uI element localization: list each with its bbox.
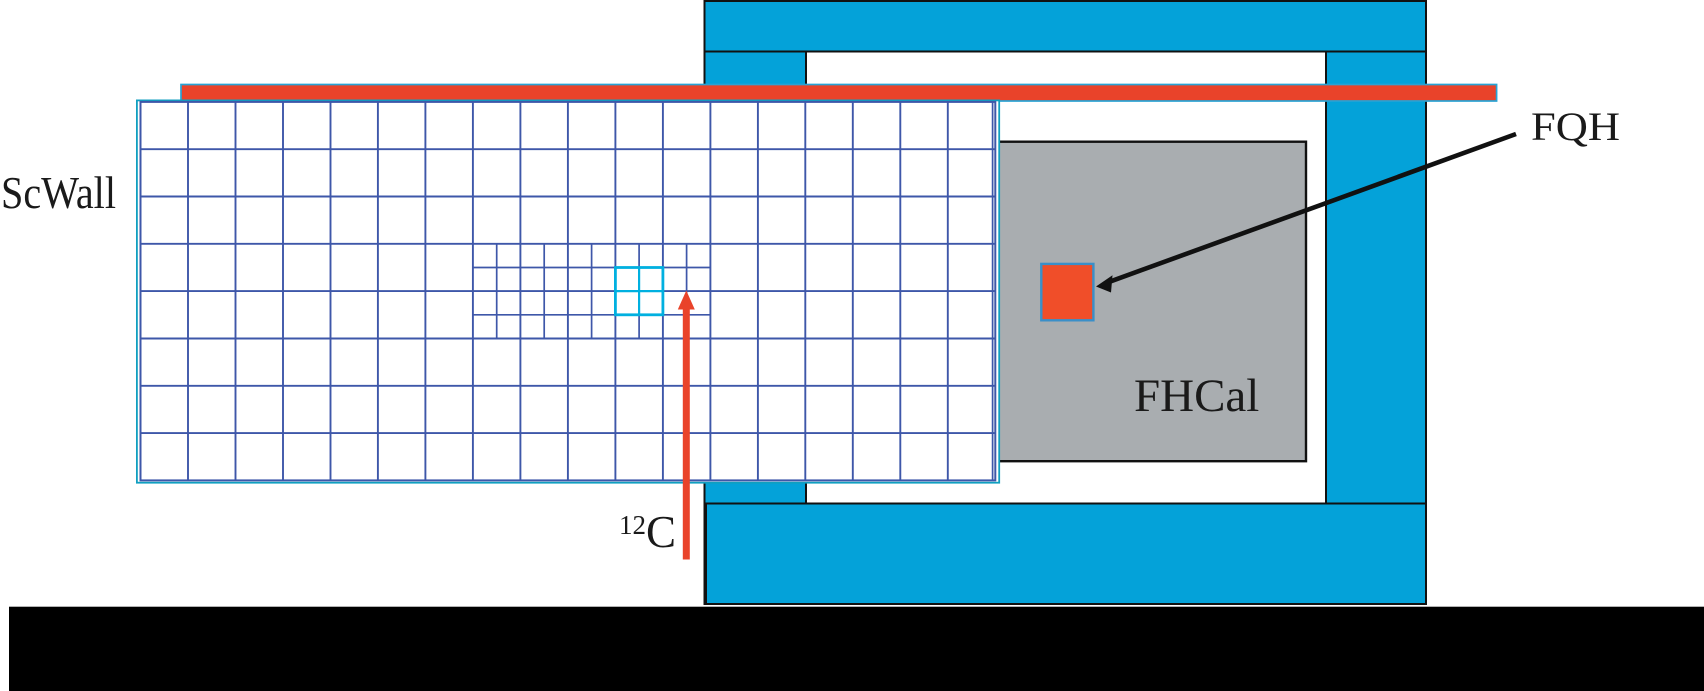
svg-text:ScWall: ScWall — [1, 168, 116, 218]
svg-text:FQH: FQH — [1531, 104, 1620, 149]
svg-text:FHCal: FHCal — [1134, 370, 1259, 422]
